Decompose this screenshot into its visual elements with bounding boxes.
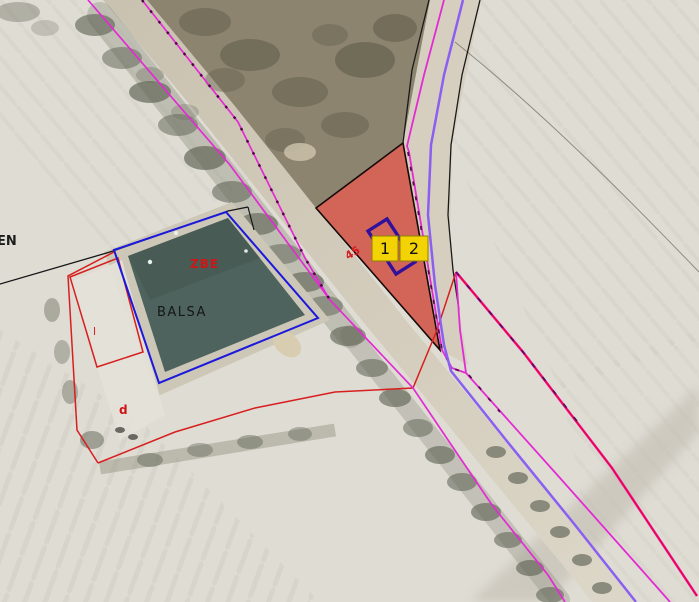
label-l: l [93,325,96,338]
marker-2-label: 2 [409,239,419,258]
label-zbe: ZBE [190,257,219,271]
label-balsa: BALSA [157,305,207,320]
label-road-name-partial: EN [0,234,17,249]
pond-speck [244,249,248,253]
marker-group: 1 2 [372,236,428,261]
aerial-map-canvas[interactable]: 1 2 EN BALSA ZBE l d 45 [0,0,699,602]
pond-speck [148,260,152,264]
map-viewport[interactable]: 1 2 EN BALSA ZBE l d 45 [0,0,699,602]
label-d: d [119,403,128,417]
pond-speck [174,231,178,235]
marker-1-label: 1 [380,239,390,258]
